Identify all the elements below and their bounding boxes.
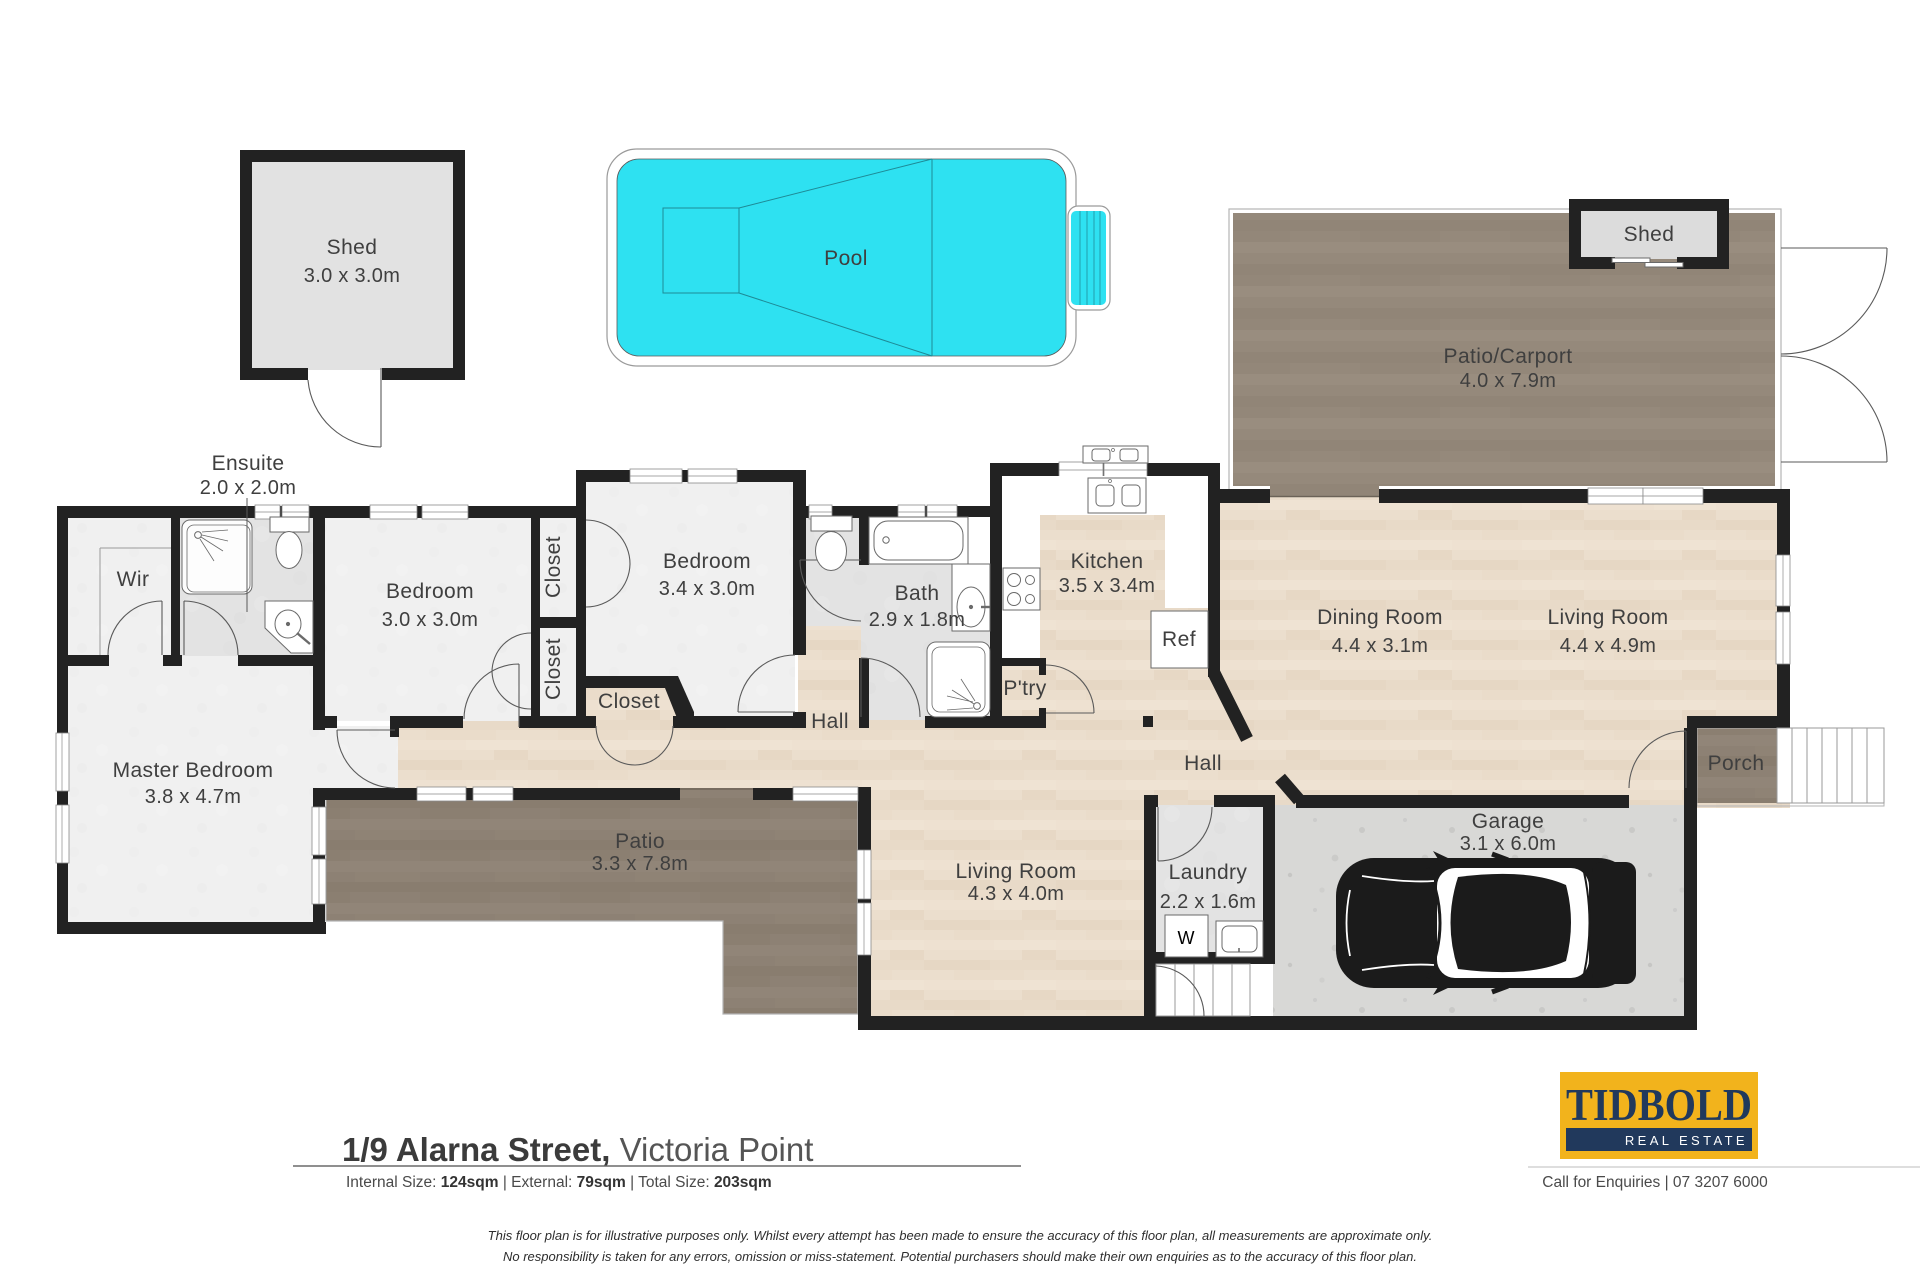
svg-text:Shed: Shed bbox=[1624, 223, 1675, 246]
svg-text:3.4 x 3.0m: 3.4 x 3.0m bbox=[659, 578, 755, 600]
svg-text:No responsibility is taken for: No responsibility is taken for any error… bbox=[503, 1249, 1417, 1264]
svg-text:2.9 x 1.8m: 2.9 x 1.8m bbox=[869, 609, 965, 631]
svg-text:Living Room: Living Room bbox=[1547, 606, 1668, 629]
svg-text:3.1 x 6.0m: 3.1 x 6.0m bbox=[1460, 833, 1556, 855]
svg-text:Pool: Pool bbox=[824, 247, 868, 270]
svg-text:4.4 x 3.1m: 4.4 x 3.1m bbox=[1332, 635, 1428, 657]
svg-text:3.0 x 3.0m: 3.0 x 3.0m bbox=[304, 265, 400, 287]
svg-text:Hall: Hall bbox=[811, 710, 849, 733]
svg-text:Closet: Closet bbox=[542, 638, 565, 700]
svg-text:2.2 x 1.6m: 2.2 x 1.6m bbox=[1160, 891, 1256, 913]
svg-text:This floor plan is for illustr: This floor plan is for illustrative purp… bbox=[488, 1228, 1433, 1243]
svg-text:Closet: Closet bbox=[598, 690, 660, 713]
svg-text:4.3 x 4.0m: 4.3 x 4.0m bbox=[968, 883, 1064, 905]
svg-text:3.5 x 3.4m: 3.5 x 3.4m bbox=[1059, 575, 1155, 597]
svg-text:Internal Size: 124sqm | Extern: Internal Size: 124sqm | External: 79sqm … bbox=[346, 1174, 772, 1191]
svg-text:Closet: Closet bbox=[542, 536, 565, 598]
svg-text:Ensuite: Ensuite bbox=[212, 452, 285, 475]
svg-text:3.8 x 4.7m: 3.8 x 4.7m bbox=[145, 786, 241, 808]
svg-text:Shed: Shed bbox=[327, 236, 378, 259]
svg-text:Kitchen: Kitchen bbox=[1071, 550, 1144, 573]
svg-text:4.0 x 7.9m: 4.0 x 7.9m bbox=[1460, 370, 1556, 392]
svg-text:Living Room: Living Room bbox=[955, 860, 1076, 883]
svg-text:W: W bbox=[1178, 928, 1195, 948]
svg-text:3.0 x 3.0m: 3.0 x 3.0m bbox=[382, 609, 478, 631]
svg-text:REAL ESTATE: REAL ESTATE bbox=[1625, 1133, 1748, 1148]
svg-text:TIDBOLD: TIDBOLD bbox=[1566, 1079, 1752, 1130]
svg-text:4.4 x 4.9m: 4.4 x 4.9m bbox=[1560, 635, 1656, 657]
svg-text:Hall: Hall bbox=[1184, 752, 1222, 775]
svg-text:Patio: Patio bbox=[615, 830, 665, 853]
svg-text:Bath: Bath bbox=[895, 582, 940, 605]
svg-text:Bedroom: Bedroom bbox=[663, 550, 751, 573]
svg-text:Patio/Carport: Patio/Carport bbox=[1444, 345, 1573, 368]
svg-text:Master Bedroom: Master Bedroom bbox=[113, 759, 274, 782]
svg-text:P'try: P'try bbox=[1003, 677, 1046, 700]
svg-text:Porch: Porch bbox=[1708, 752, 1765, 775]
svg-text:3.3 x 7.8m: 3.3 x 7.8m bbox=[592, 853, 688, 875]
svg-text:1/9 Alarna Street, Victoria Po: 1/9 Alarna Street, Victoria Point bbox=[342, 1131, 813, 1168]
svg-text:2.0 x 2.0m: 2.0 x 2.0m bbox=[200, 477, 296, 499]
svg-text:Ref: Ref bbox=[1162, 628, 1196, 651]
svg-text:Dining Room: Dining Room bbox=[1317, 606, 1443, 629]
svg-text:Wir: Wir bbox=[117, 568, 150, 591]
svg-text:Laundry: Laundry bbox=[1169, 861, 1248, 884]
svg-text:Bedroom: Bedroom bbox=[386, 580, 474, 603]
svg-text:Garage: Garage bbox=[1472, 810, 1544, 833]
svg-text:Call for Enquiries | 07 3207 6: Call for Enquiries | 07 3207 6000 bbox=[1542, 1174, 1768, 1191]
